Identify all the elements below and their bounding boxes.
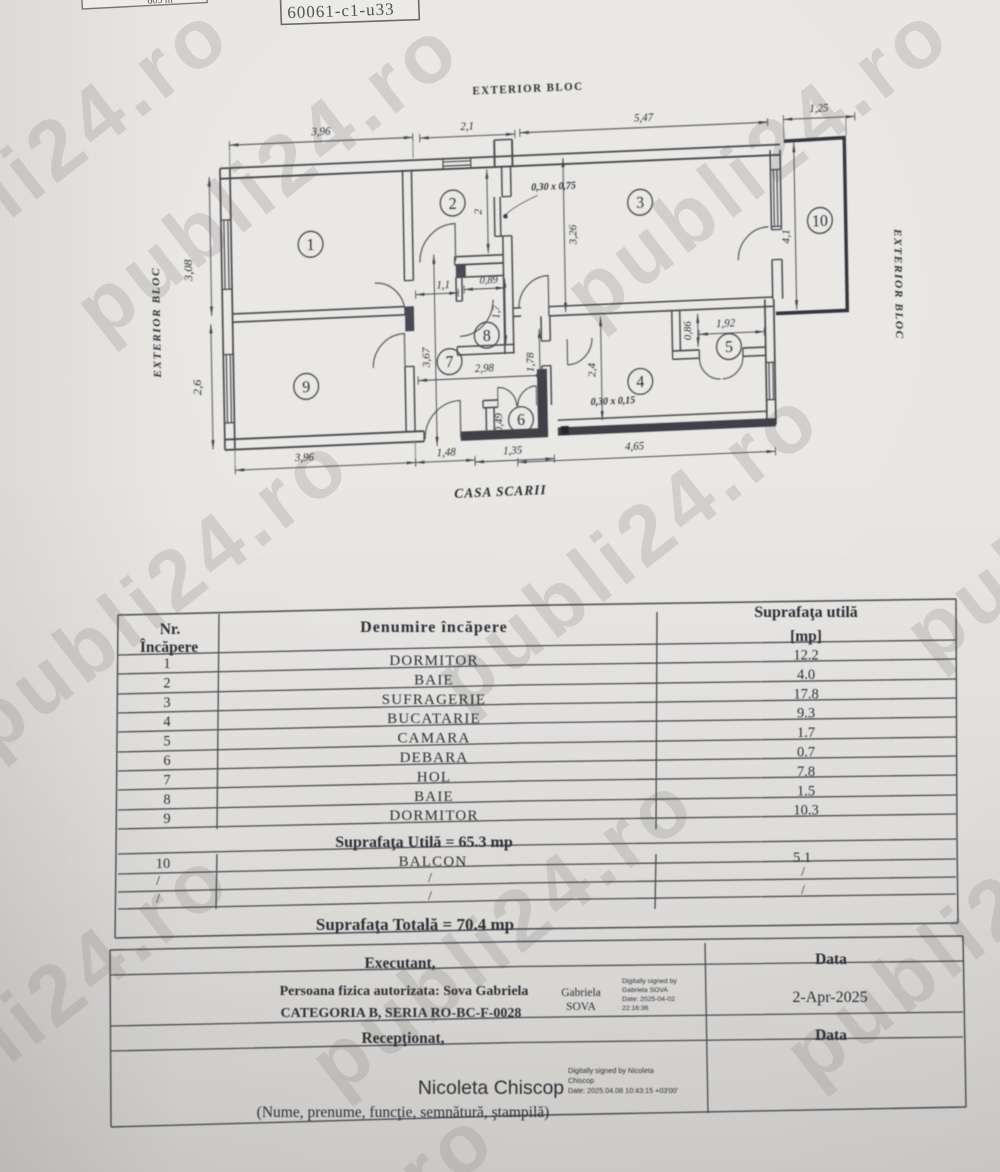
svg-text:1,25: 1,25 — [809, 102, 829, 115]
svg-text:Date: 2025.04.08 10:43:15 +03': Date: 2025.04.08 10:43:15 +03'00' — [568, 1086, 679, 1095]
svg-text:3,96: 3,96 — [294, 451, 315, 464]
svg-text:publi24.ro: publi24.ro — [886, 323, 1000, 681]
svg-text:4: 4 — [163, 714, 171, 730]
svg-text:2-Apr-2025: 2-Apr-2025 — [792, 989, 867, 1006]
svg-text:Recepţionat,: Recepţionat, — [361, 1030, 444, 1047]
svg-text:Suprafaţa Utilă = 65.3 mp: Suprafaţa Utilă = 65.3 mp — [335, 834, 513, 851]
svg-text:[mp]: [mp] — [790, 628, 822, 645]
svg-text:0,30 x 0,15: 0,30 x 0,15 — [591, 395, 636, 408]
svg-text:Denumire încăpere: Denumire încăpere — [360, 619, 508, 636]
svg-text:SOVA: SOVA — [566, 1001, 597, 1013]
svg-text:3,08: 3,08 — [181, 259, 195, 282]
svg-text:/: / — [156, 891, 160, 906]
svg-text:/: / — [156, 873, 160, 888]
svg-text:Gabriela SOVA: Gabriela SOVA — [622, 987, 668, 994]
svg-text:0,49: 0,49 — [494, 412, 505, 432]
svg-text:CAMARA: CAMARA — [397, 731, 470, 747]
svg-text:EXTERIOR BLOC: EXTERIOR BLOC — [472, 80, 583, 97]
svg-text:7.8: 7.8 — [797, 764, 815, 780]
svg-text:DORMITOR: DORMITOR — [389, 653, 478, 669]
svg-text:Suprafaţa utilă: Suprafaţa utilă — [754, 604, 858, 621]
svg-text:publi24.ro: publi24.ro — [0, 828, 248, 1172]
svg-text:5: 5 — [725, 338, 733, 357]
svg-text:0,89: 0,89 — [480, 275, 499, 287]
svg-text:22:16:36: 22:16:36 — [622, 1005, 649, 1012]
svg-text:/: / — [801, 864, 805, 879]
svg-text:17.8: 17.8 — [793, 686, 818, 702]
svg-text:1,78: 1,78 — [525, 352, 537, 373]
svg-text:3,96: 3,96 — [310, 125, 331, 138]
svg-text:0,86: 0,86 — [683, 320, 694, 340]
svg-text:/: / — [801, 882, 805, 897]
svg-text:BUCATARIE: BUCATARIE — [387, 711, 481, 727]
svg-text:3: 3 — [636, 193, 644, 212]
svg-text:1: 1 — [163, 656, 170, 672]
svg-text:6: 6 — [517, 411, 525, 430]
svg-text:publi24.ro: publi24.ro — [91, 1088, 512, 1172]
svg-text:Digitally signed by Nicoleta: Digitally signed by Nicoleta — [568, 1066, 654, 1075]
svg-text:1,7: 1,7 — [491, 304, 502, 319]
svg-text:2: 2 — [473, 208, 485, 215]
svg-text:4,65: 4,65 — [625, 440, 645, 453]
svg-text:DEBARA: DEBARA — [400, 750, 469, 766]
svg-text:4,1: 4,1 — [781, 229, 793, 244]
svg-text:Încăpere: Încăpere — [140, 639, 198, 656]
svg-text:Executant,: Executant, — [364, 955, 435, 972]
svg-text:8: 8 — [163, 792, 170, 808]
svg-text:/: / — [428, 888, 432, 903]
svg-text:CASA SCARII: CASA SCARII — [454, 482, 547, 501]
svg-text:2,4: 2,4 — [587, 362, 599, 377]
svg-text:Data: Data — [815, 1027, 847, 1044]
svg-text:12.2: 12.2 — [793, 648, 818, 664]
svg-text:Persoana fizica autorizata: So: Persoana fizica autorizata: Sova Gabriel… — [280, 984, 529, 999]
svg-text:1.7: 1.7 — [797, 725, 815, 741]
svg-text:BALCON: BALCON — [399, 854, 468, 870]
svg-text:1,92: 1,92 — [716, 317, 736, 330]
svg-text:1: 1 — [306, 236, 314, 255]
svg-text:2: 2 — [449, 194, 457, 213]
svg-text:9: 9 — [302, 378, 310, 397]
svg-text:3: 3 — [163, 695, 170, 711]
svg-text:4: 4 — [636, 373, 644, 392]
svg-text:HOL: HOL — [417, 769, 451, 785]
svg-text:DORMITOR: DORMITOR — [389, 808, 478, 824]
svg-text:3,67: 3,67 — [421, 347, 433, 369]
svg-text:1,35: 1,35 — [503, 445, 523, 458]
svg-text:7: 7 — [163, 772, 170, 788]
svg-text:BAIE: BAIE — [414, 789, 454, 805]
svg-text:10.3: 10.3 — [793, 803, 818, 819]
svg-text:Suprafaţa Totală = 70.4 mp: Suprafaţa Totală = 70.4 mp — [316, 915, 514, 934]
svg-text:Nr.: Nr. — [160, 621, 181, 638]
svg-text:SUFRAGERIE: SUFRAGERIE — [382, 692, 487, 708]
svg-text:Gabriela: Gabriela — [561, 987, 601, 999]
svg-text:9.3: 9.3 — [797, 706, 815, 722]
svg-text:Chiscop: Chiscop — [568, 1076, 594, 1085]
svg-text:60061-c1-u33: 60061-c1-u33 — [287, 0, 395, 22]
svg-text:BAIE: BAIE — [414, 672, 454, 688]
svg-text:EXTERIOR BLOC: EXTERIOR BLOC — [891, 228, 905, 340]
svg-text:2: 2 — [163, 675, 170, 691]
svg-text:2,98: 2,98 — [475, 362, 495, 375]
svg-text:2,1: 2,1 — [460, 120, 474, 133]
svg-text:/: / — [428, 870, 432, 885]
svg-text:Digitally signed by: Digitally signed by — [622, 978, 677, 985]
svg-text:10: 10 — [156, 856, 171, 872]
svg-text:8: 8 — [483, 326, 491, 345]
svg-text:1,48: 1,48 — [437, 446, 457, 459]
svg-text:EXTERIOR BLOC: EXTERIOR BLOC — [150, 267, 164, 379]
svg-text:7: 7 — [445, 353, 453, 372]
svg-text:0,30 x 0,75: 0,30 x 0,75 — [531, 180, 576, 193]
svg-text:Nicoleta Chiscop: Nicoleta Chiscop — [418, 1077, 564, 1099]
svg-text:10: 10 — [812, 212, 828, 231]
svg-text:(Nume, prenume, funcţie, semnă: (Nume, prenume, funcţie, semnătură, ştam… — [257, 1104, 550, 1121]
svg-text:5,47: 5,47 — [634, 112, 654, 125]
svg-text:5: 5 — [163, 734, 170, 750]
svg-text:2,6: 2,6 — [190, 378, 204, 395]
svg-text:9: 9 — [163, 811, 170, 827]
svg-text:Date: 2025-04-02: Date: 2025-04-02 — [622, 996, 675, 1003]
svg-text:Data: Data — [815, 951, 847, 968]
svg-text:CATEGORIA B, SERIA RO-BC-F-002: CATEGORIA B, SERIA RO-BC-F-0028 — [281, 1006, 522, 1021]
svg-text:1,1: 1,1 — [436, 279, 450, 292]
svg-text:0.7: 0.7 — [797, 745, 815, 761]
svg-text:6: 6 — [163, 753, 170, 769]
svg-text:1.5: 1.5 — [797, 783, 815, 799]
svg-text:4.0: 4.0 — [797, 667, 815, 683]
svg-text:3,26: 3,26 — [567, 224, 579, 246]
